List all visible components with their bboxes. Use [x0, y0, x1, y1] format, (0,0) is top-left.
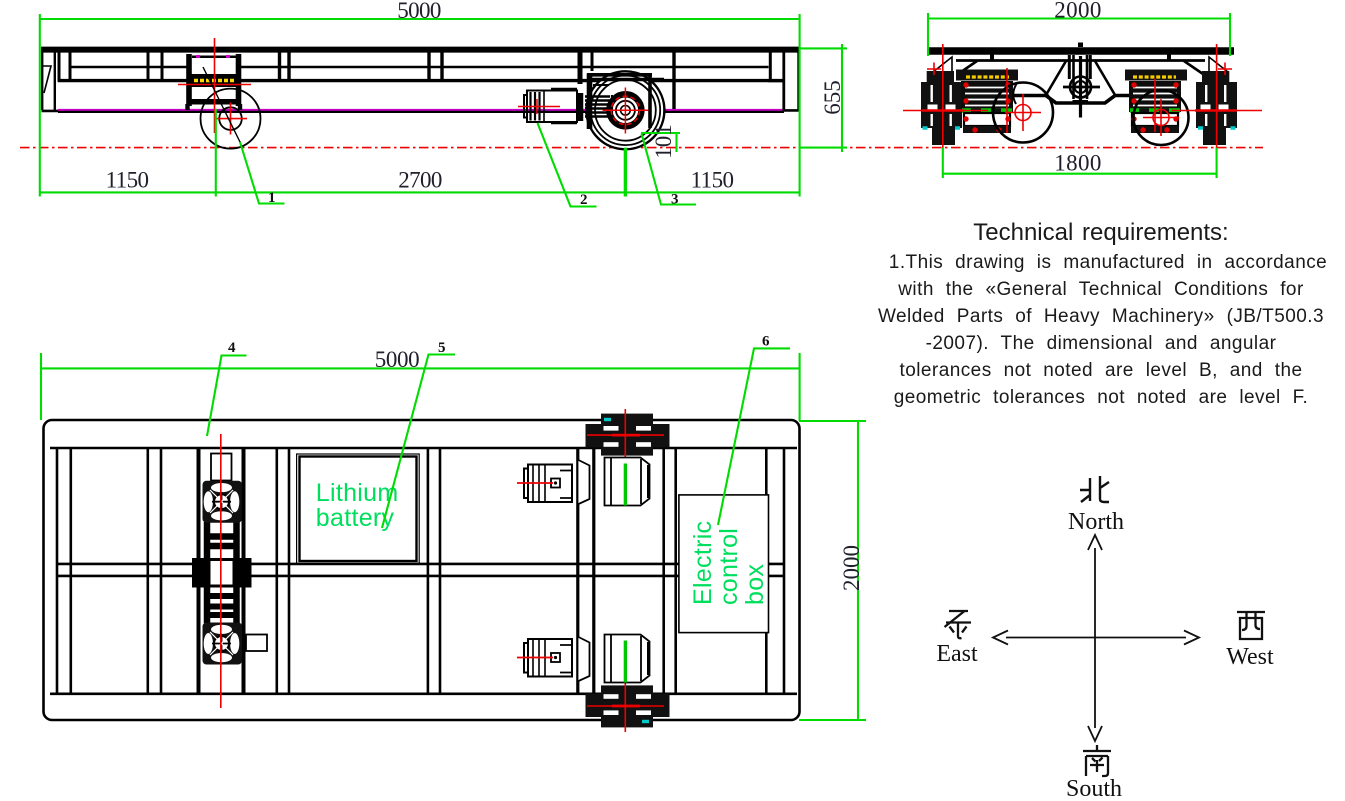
svg-text:West: West [1226, 644, 1274, 670]
svg-text:-2007). The dimensional and an: -2007). The dimensional and angular [926, 333, 1277, 354]
svg-text:2: 2 [580, 192, 588, 208]
svg-text:2000: 2000 [839, 545, 864, 591]
svg-text:Technical requirements:: Technical requirements: [973, 219, 1228, 246]
svg-text:1: 1 [268, 190, 276, 206]
svg-text:3: 3 [671, 192, 679, 208]
svg-text:Lithium: Lithium [316, 479, 399, 507]
svg-text:1150: 1150 [106, 168, 149, 193]
svg-text:Welded Parts of Heavy Machiner: Welded Parts of Heavy Machinery» (JB/T50… [878, 306, 1324, 327]
svg-text:6: 6 [762, 334, 770, 350]
svg-text:655: 655 [820, 80, 845, 115]
svg-text:with the «General Technical Co: with the «General Technical Conditions f… [897, 279, 1304, 300]
svg-text:101: 101 [651, 124, 676, 159]
svg-text:East: East [936, 641, 978, 667]
svg-text:5000: 5000 [375, 347, 419, 372]
svg-text:Electric: Electric [689, 521, 717, 605]
svg-text:tolerances not noted are level: tolerances not noted are level B, and th… [899, 360, 1302, 381]
svg-text:5000: 5000 [397, 0, 441, 23]
svg-text:1800: 1800 [1054, 151, 1102, 176]
svg-text:4: 4 [228, 340, 236, 356]
svg-text:5: 5 [438, 340, 446, 356]
svg-text:South: South [1066, 776, 1122, 801]
svg-text:geometric tolerances not noted: geometric tolerances not noted are level… [894, 387, 1309, 408]
svg-text:2000: 2000 [1054, 0, 1102, 22]
svg-text:1150: 1150 [691, 168, 734, 193]
svg-text:box: box [741, 564, 769, 605]
svg-text:North: North [1068, 509, 1124, 535]
svg-text:2700: 2700 [398, 168, 442, 193]
svg-text:control: control [715, 528, 743, 605]
svg-text:1.This drawing is manufactured: 1.This drawing is manufactured in accord… [889, 252, 1327, 273]
